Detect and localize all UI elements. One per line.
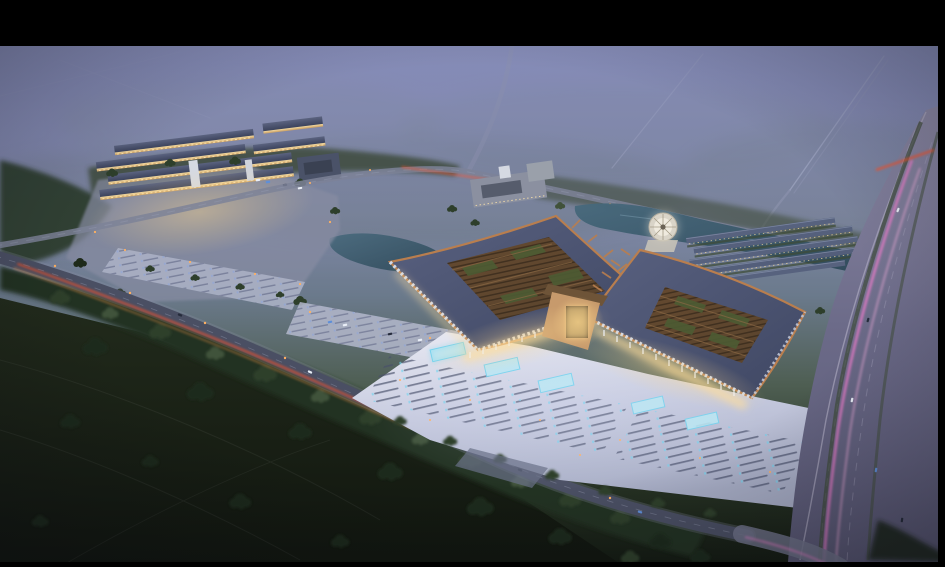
aerial-rendering-canvas xyxy=(0,0,945,567)
letterbox-bottom xyxy=(0,562,945,567)
letterbox-right xyxy=(938,0,945,567)
rendering-image xyxy=(0,0,945,567)
letterbox-top xyxy=(0,0,945,46)
vignette xyxy=(0,46,945,562)
